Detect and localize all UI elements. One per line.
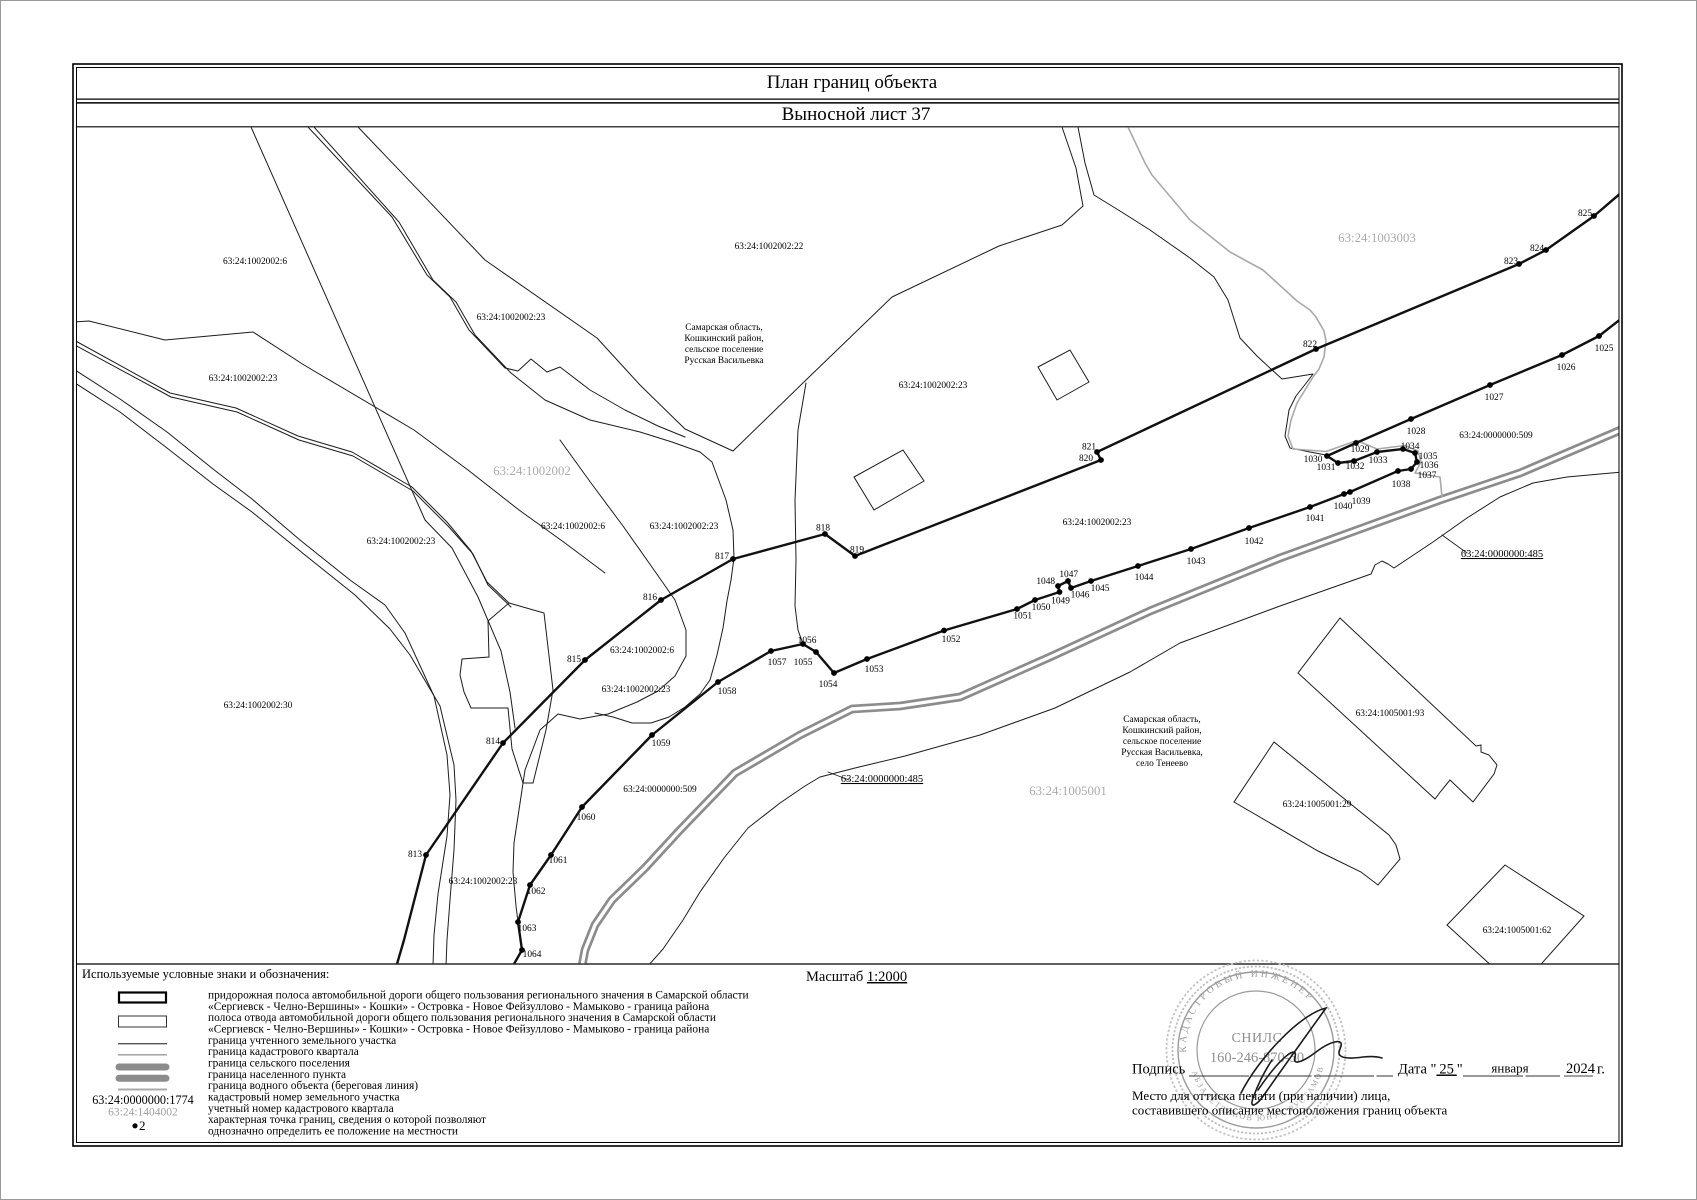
- svg-text:63:24:1002002:23: 63:24:1002002:23: [602, 685, 671, 695]
- svg-text:1027: 1027: [1485, 393, 1504, 403]
- svg-text:63:24:1404002: 63:24:1404002: [108, 1107, 178, 1119]
- svg-text:1025: 1025: [1595, 344, 1614, 354]
- svg-text:1058: 1058: [718, 687, 737, 697]
- svg-text:граница кадастрового квартала: граница кадастрового квартала: [208, 1046, 359, 1058]
- svg-text:придорожная полоса автомобильн: придорожная полоса автомобильной дороги …: [208, 990, 749, 1002]
- svg-text:1063: 1063: [518, 924, 537, 934]
- svg-text:1042: 1042: [1245, 537, 1264, 547]
- svg-text:1062: 1062: [527, 887, 546, 897]
- svg-text:1045: 1045: [1091, 584, 1110, 594]
- svg-text:1032: 1032: [1346, 462, 1365, 472]
- svg-text:Самарская область,: Самарская область,: [685, 322, 762, 333]
- svg-text:63:24:0000000:1774: 63:24:0000000:1774: [92, 1093, 194, 1107]
- svg-text:1029: 1029: [1351, 445, 1370, 455]
- svg-text:1040: 1040: [1334, 502, 1353, 512]
- svg-text:План границ объекта: План границ объекта: [767, 72, 938, 93]
- svg-text:1052: 1052: [942, 635, 961, 645]
- svg-text:63:24:1002002:6: 63:24:1002002:6: [610, 646, 674, 656]
- svg-text:1053: 1053: [865, 665, 884, 675]
- svg-text:граница сельского поселения: граница сельского поселения: [208, 1057, 351, 1069]
- svg-text:1041: 1041: [1306, 514, 1325, 524]
- svg-text:1038: 1038: [1392, 480, 1411, 490]
- svg-text:Кошкинский район,: Кошкинский район,: [684, 333, 763, 344]
- svg-text:63:24:1002002:6: 63:24:1002002:6: [541, 522, 605, 532]
- svg-text:1049: 1049: [1051, 597, 1070, 607]
- svg-text:815: 815: [567, 655, 581, 665]
- svg-text:граница учтенного земельного у: граница учтенного земельного участка: [208, 1035, 396, 1047]
- svg-text:Русская Васильевка,: Русская Васильевка,: [1121, 748, 1203, 758]
- svg-text:63:24:1002002:23: 63:24:1002002:23: [367, 537, 436, 547]
- svg-text:1028: 1028: [1407, 427, 1426, 437]
- svg-text:63:24:1005001: 63:24:1005001: [1029, 784, 1107, 798]
- svg-text:63:24:1002002: 63:24:1002002: [493, 464, 571, 478]
- svg-text:825: 825: [1578, 209, 1592, 219]
- svg-text:«Сергиевск - Челно-Вершины» -: «Сергиевск - Челно-Вершины» - Кошки» - О…: [208, 1001, 709, 1013]
- svg-text:«Сергиевск - Челно-Вершины» -: «Сергиевск - Челно-Вершины» - Кошки» - О…: [208, 1023, 709, 1035]
- svg-text:63:24:1002002:6: 63:24:1002002:6: [223, 257, 287, 267]
- svg-text:Кошкинский район,: Кошкинский район,: [1122, 725, 1201, 736]
- svg-text:63:24:1002002:23: 63:24:1002002:23: [899, 381, 968, 391]
- svg-text:813: 813: [408, 850, 422, 860]
- svg-text:1031: 1031: [1317, 463, 1336, 473]
- svg-text:817: 817: [715, 552, 729, 562]
- svg-text:814: 814: [486, 737, 500, 747]
- svg-text:822: 822: [1303, 340, 1317, 350]
- svg-text:1043: 1043: [1187, 557, 1206, 567]
- svg-text:63:24:0000000:485: 63:24:0000000:485: [1461, 549, 1543, 560]
- svg-text:1026: 1026: [1557, 363, 1576, 373]
- svg-text:63:24:1005001:62: 63:24:1005001:62: [1483, 926, 1552, 936]
- svg-text:63:24:0000000:485: 63:24:0000000:485: [841, 774, 923, 785]
- svg-text:1056: 1056: [798, 636, 817, 646]
- svg-text:1033: 1033: [1369, 456, 1388, 466]
- svg-text:сельское поселение: сельское поселение: [1123, 737, 1201, 747]
- svg-text:63:24:1002002:23: 63:24:1002002:23: [449, 877, 518, 887]
- svg-text:824: 824: [1530, 244, 1544, 254]
- svg-text:Место для оттиска печати (при: Место для оттиска печати (при наличии) л…: [1132, 1088, 1390, 1103]
- svg-text:1046: 1046: [1071, 591, 1090, 601]
- svg-text:1039: 1039: [1352, 497, 1371, 507]
- svg-text:Подпись: Подпись: [1132, 1062, 1186, 1078]
- svg-text:1044: 1044: [1135, 573, 1154, 583]
- svg-text:СНИЛС: СНИЛС: [1232, 1031, 1283, 1046]
- svg-text:1050: 1050: [1032, 603, 1051, 613]
- svg-text:характерная точка границ, свед: характерная точка границ, сведения о кот…: [208, 1114, 486, 1126]
- svg-text:818: 818: [816, 524, 830, 534]
- svg-text:кадастровый номер земельного у: кадастровый номер земельного участка: [208, 1091, 400, 1103]
- svg-text:821: 821: [1082, 443, 1096, 453]
- svg-text:Самарская область,: Самарская область,: [1123, 714, 1200, 725]
- svg-text:г.: г.: [1597, 1062, 1605, 1078]
- svg-text:1036: 1036: [1420, 461, 1439, 471]
- svg-text:учетный номер кадастрового ква: учетный номер кадастрового квартала: [208, 1103, 394, 1115]
- svg-text:граница водного объекта (берег: граница водного объекта (береговая линия…: [208, 1080, 418, 1092]
- svg-text:Русская Васильевка: Русская Васильевка: [684, 356, 764, 366]
- svg-text:63:24:1003003: 63:24:1003003: [1338, 231, 1416, 245]
- svg-text:63:24:1002002:23: 63:24:1002002:23: [650, 522, 719, 532]
- svg-text:816: 816: [643, 593, 657, 603]
- svg-text:63:24:1002002:23: 63:24:1002002:23: [209, 374, 278, 384]
- svg-text:составившего описание местопол: составившего описание местоположения гра…: [1132, 1103, 1448, 1118]
- svg-text:сельское поселение: сельское поселение: [685, 345, 763, 355]
- svg-text:Выносной лист 37: Выносной лист 37: [782, 104, 931, 125]
- svg-text:63:24:1002002:23: 63:24:1002002:23: [477, 313, 546, 323]
- svg-text:1060: 1060: [577, 813, 596, 823]
- svg-text:819: 819: [850, 546, 864, 556]
- svg-text:1064: 1064: [523, 950, 542, 960]
- svg-text:63:24:1002002:23: 63:24:1002002:23: [1063, 518, 1132, 528]
- svg-text:1037: 1037: [1418, 471, 1437, 481]
- svg-text:Дата " 25 ": Дата " 25 ": [1398, 1062, 1463, 1078]
- svg-text:63:24:1002002:22: 63:24:1002002:22: [735, 242, 804, 252]
- svg-text:1051: 1051: [1013, 612, 1032, 622]
- svg-text:63:24:1005001:93: 63:24:1005001:93: [1356, 709, 1425, 719]
- svg-text:820: 820: [1079, 454, 1093, 464]
- svg-text:1054: 1054: [819, 680, 838, 690]
- svg-text:1057: 1057: [768, 658, 787, 668]
- svg-text:1048: 1048: [1036, 577, 1055, 587]
- svg-text:2024: 2024: [1566, 1061, 1596, 1077]
- svg-text:823: 823: [1504, 257, 1518, 267]
- svg-text:63:24:0000000:509: 63:24:0000000:509: [1459, 431, 1533, 441]
- svg-text:1061: 1061: [549, 856, 568, 866]
- svg-text:63:24:1002002:30: 63:24:1002002:30: [224, 701, 293, 711]
- svg-text:января: января: [1491, 1061, 1528, 1076]
- svg-text:63:24:0000000:509: 63:24:0000000:509: [623, 785, 697, 795]
- svg-text:полоса отвода автомобильной до: полоса отвода автомобильной дороги общег…: [208, 1012, 716, 1024]
- svg-text:Используемые условные знаки и: Используемые условные знаки и обозначени…: [82, 967, 329, 981]
- svg-text:однозначно определить ее полож: однозначно определить ее положение на ме…: [208, 1125, 458, 1137]
- svg-text:1034: 1034: [1401, 442, 1420, 452]
- svg-text:1055: 1055: [794, 658, 813, 668]
- svg-text:2: 2: [139, 1118, 146, 1133]
- svg-text:63:24:1005001:29: 63:24:1005001:29: [1283, 800, 1352, 810]
- svg-text:граница населенного пункта: граница населенного пункта: [208, 1069, 346, 1081]
- svg-text:1047: 1047: [1059, 570, 1078, 580]
- svg-text:1059: 1059: [652, 739, 671, 749]
- svg-text:село Тенеево: село Тенеево: [1136, 759, 1188, 769]
- svg-text:Масштаб 1:2000: Масштаб 1:2000: [806, 969, 907, 985]
